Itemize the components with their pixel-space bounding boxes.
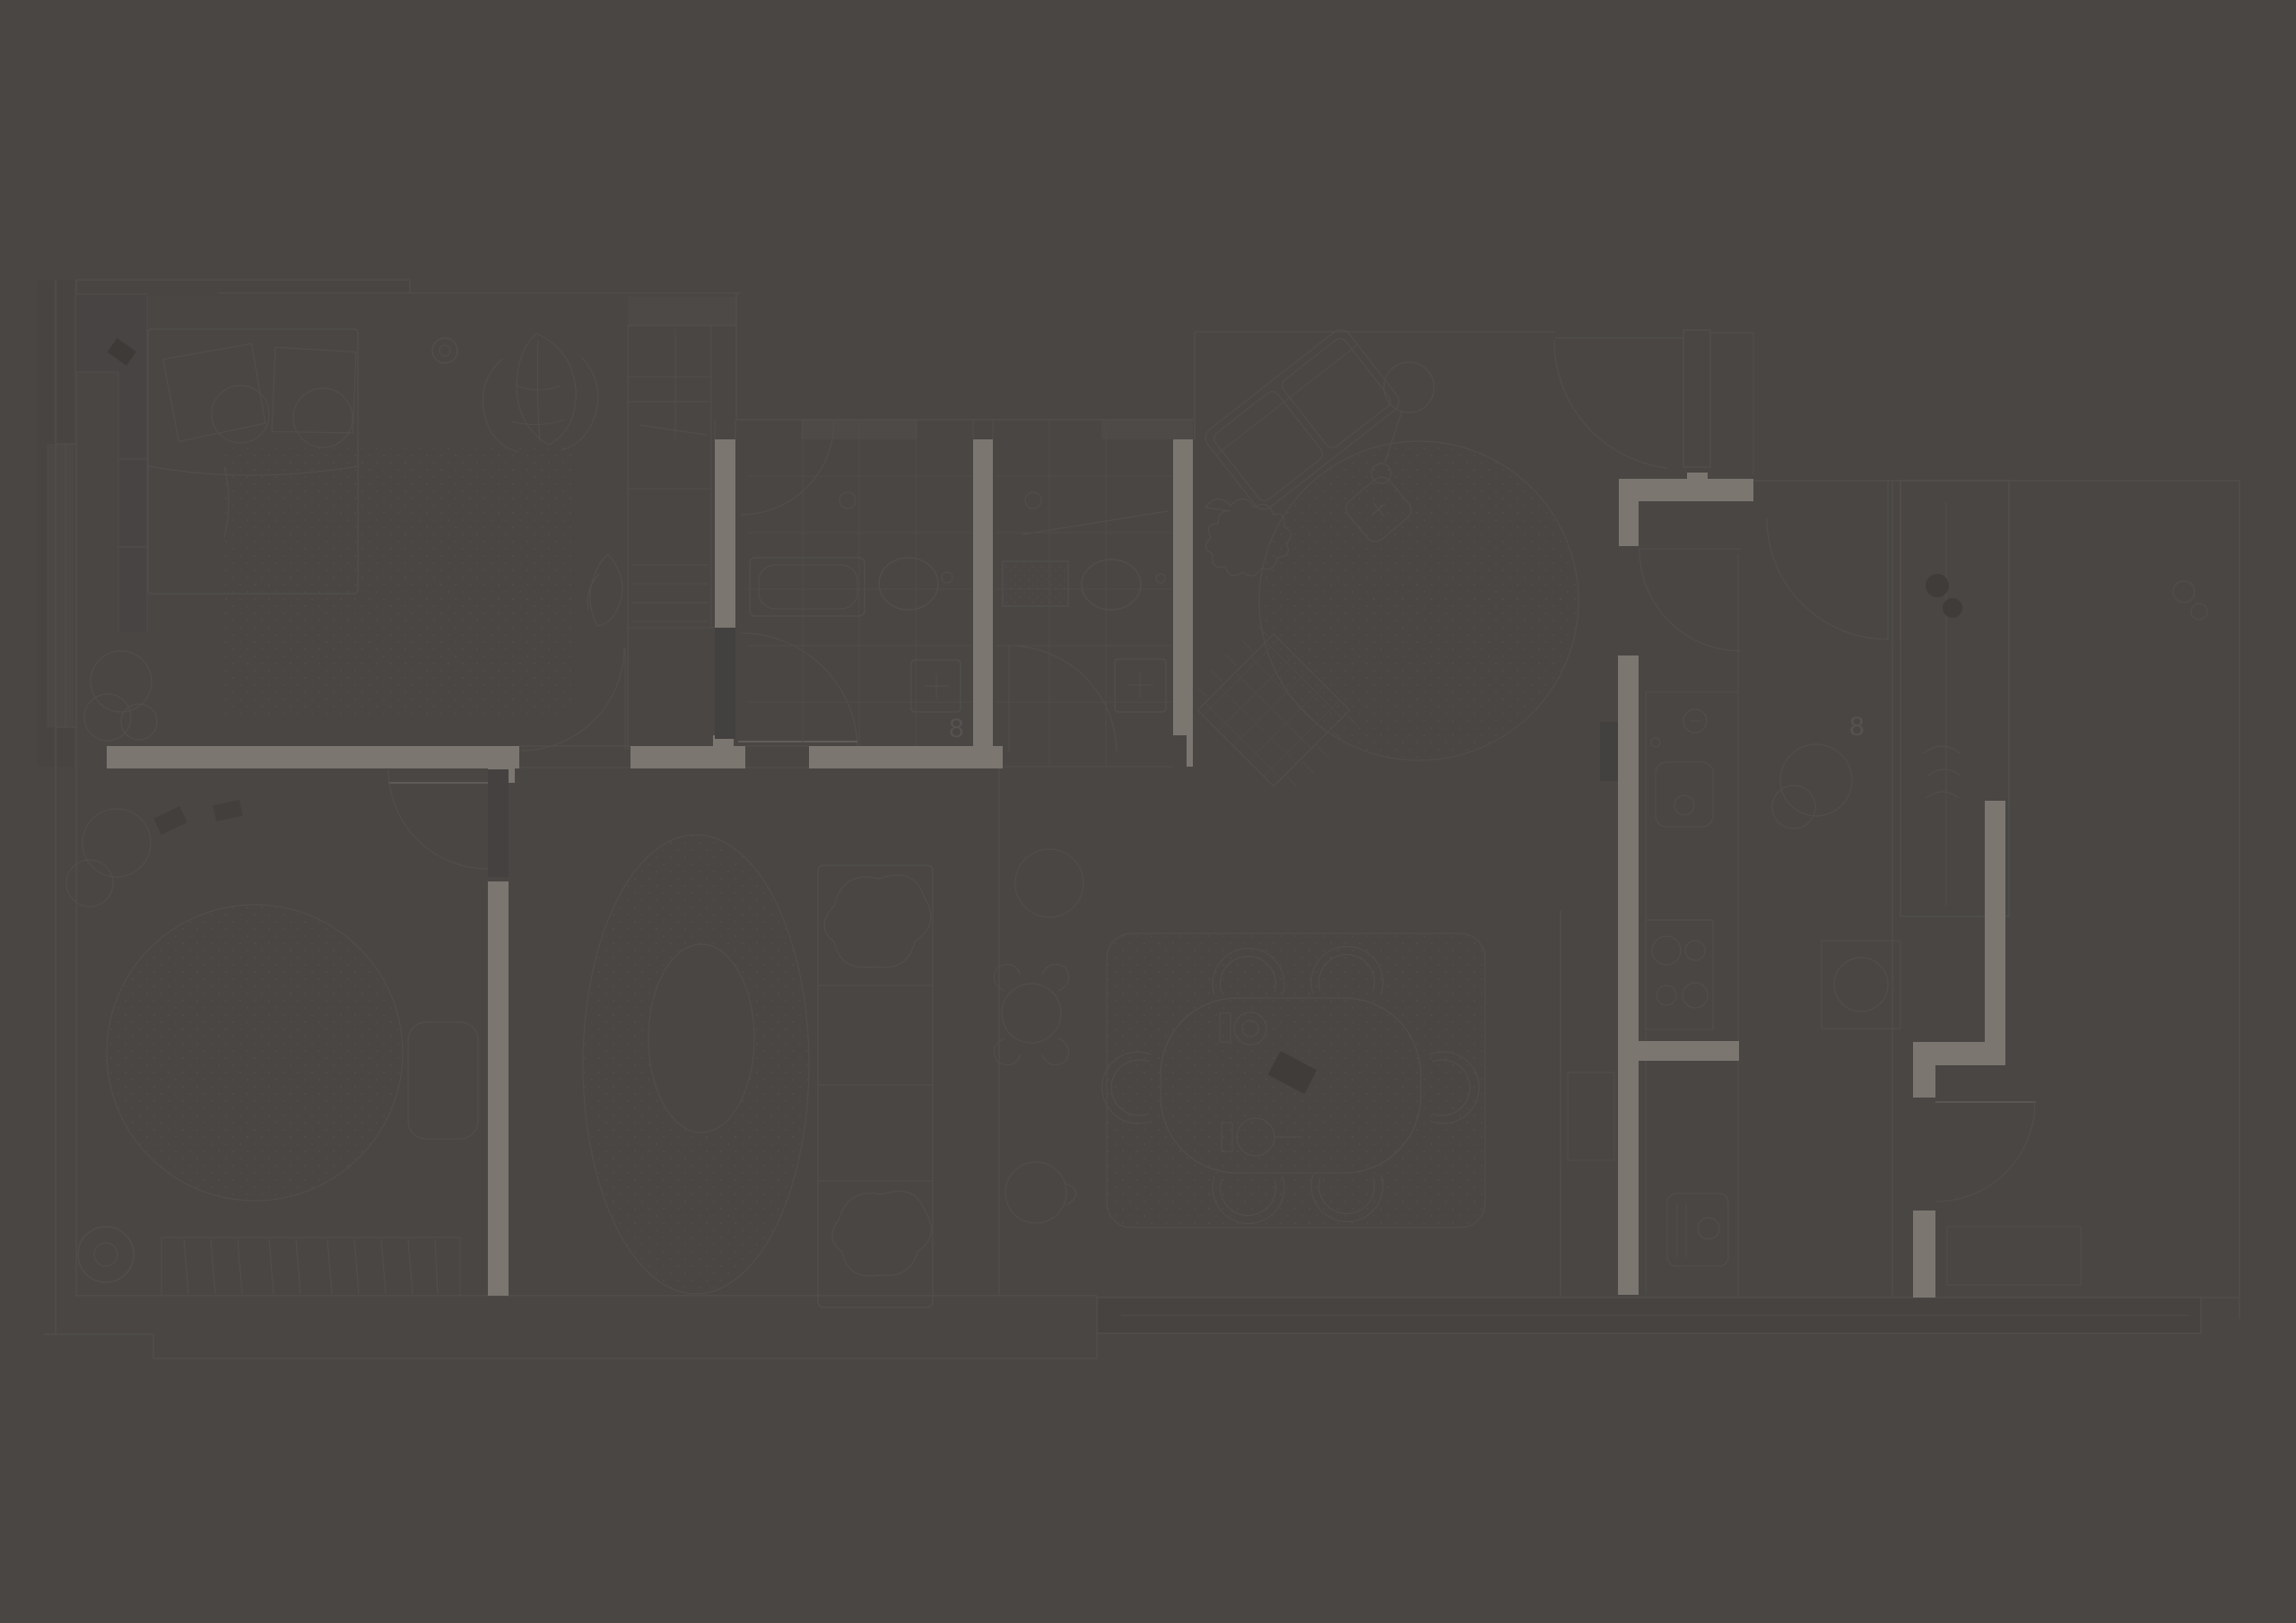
svg-text:8: 8 <box>949 714 964 743</box>
svg-text:8: 8 <box>1849 712 1865 742</box>
